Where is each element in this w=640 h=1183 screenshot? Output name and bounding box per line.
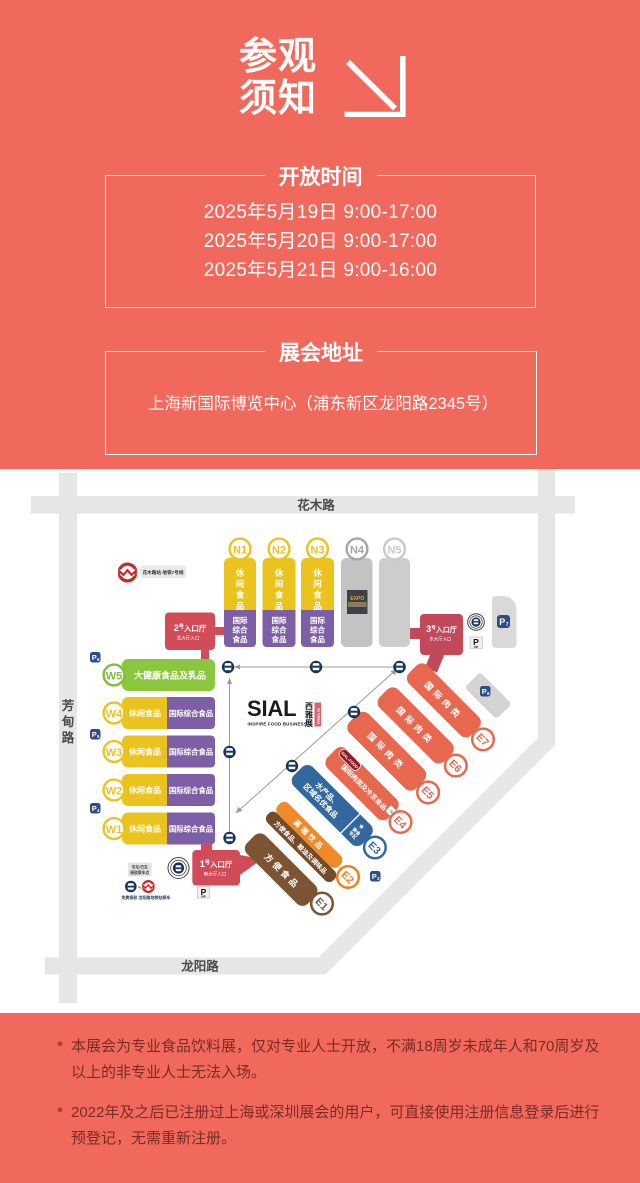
svg-text:甸: 甸 (61, 714, 75, 729)
svg-text:食: 食 (275, 590, 284, 600)
svg-text:大健康食品及乳品: 大健康食品及乳品 (134, 670, 206, 681)
svg-text:休闲食品: 休闲食品 (128, 785, 161, 795)
svg-text:W3: W3 (106, 747, 123, 759)
svg-text:国际综合食品: 国际综合食品 (169, 709, 213, 718)
svg-text:综合: 综合 (272, 625, 287, 635)
svg-text:EXPO: EXPO (350, 596, 364, 602)
svg-text:免费接驳 龙阳路地铁站乘车: 免费接驳 龙阳路地铁站乘车 (121, 894, 170, 900)
svg-text:东大厅入口: 东大厅入口 (430, 636, 452, 643)
svg-text:花木路站·地铁7号线: 花木路站·地铁7号线 (143, 569, 184, 576)
svg-text:SIAL: SIAL (247, 696, 296, 721)
svg-text:接驳乘车点: 接驳乘车点 (129, 870, 149, 875)
svg-text:食品: 食品 (310, 634, 325, 644)
svg-text:N5: N5 (387, 545, 401, 557)
svg-text:品: 品 (236, 601, 245, 611)
svg-text:闲: 闲 (313, 579, 322, 589)
svg-text:in China: in China (317, 708, 322, 725)
svg-text:品: 品 (275, 601, 284, 611)
svg-text:W4: W4 (106, 709, 123, 721)
svg-text:国际综合食品: 国际综合食品 (169, 786, 213, 795)
svg-text:休: 休 (312, 568, 322, 578)
svg-text:雅: 雅 (305, 710, 313, 720)
svg-text:N2: N2 (272, 545, 286, 557)
svg-text:休闲食品: 休闲食品 (128, 824, 161, 834)
svg-text:龙阳路: 龙阳路 (180, 959, 219, 974)
svg-text:VIP: VIP (201, 895, 206, 899)
svg-text:北大厅入口: 北大厅入口 (177, 635, 200, 642)
svg-text:P: P (499, 617, 505, 627)
svg-text:1号入口厅: 1号入口厅 (200, 859, 233, 870)
svg-text:N1: N1 (233, 545, 247, 557)
svg-text:国际综合食品: 国际综合食品 (169, 825, 213, 834)
svg-text:食品: 食品 (233, 634, 248, 644)
svg-text:食品: 食品 (272, 634, 287, 644)
svg-text:休闲食品: 休闲食品 (128, 747, 161, 757)
svg-text:W2: W2 (106, 786, 123, 798)
svg-text:休闲食品: 休闲食品 (128, 708, 161, 718)
svg-text:国际: 国际 (310, 615, 325, 625)
svg-text:专车/巴车: 专车/巴车 (132, 865, 148, 870)
svg-text:芳: 芳 (62, 698, 75, 713)
svg-text:综合: 综合 (310, 625, 325, 635)
svg-text:N4: N4 (350, 545, 365, 557)
svg-text:闲: 闲 (236, 579, 245, 589)
svg-text:国际综合食品: 国际综合食品 (169, 748, 213, 757)
svg-text:与: 与 (138, 884, 142, 889)
svg-text:VIP: VIP (474, 645, 479, 649)
svg-text:休: 休 (274, 568, 284, 578)
svg-text:食: 食 (236, 590, 245, 600)
svg-text:闲: 闲 (275, 579, 284, 589)
svg-text:2号入口厅: 2号入口厅 (174, 623, 207, 634)
svg-text:休: 休 (235, 568, 245, 578)
svg-text:路: 路 (62, 730, 75, 745)
svg-text:花木路: 花木路 (297, 498, 335, 513)
svg-text:INSPIRE FOOD BUSINESS: INSPIRE FOOD BUSINESS (248, 722, 307, 727)
svg-text:南大厅入口: 南大厅入口 (204, 871, 227, 878)
svg-text:国际: 国际 (233, 615, 248, 625)
svg-text:W5: W5 (106, 671, 123, 683)
svg-text:展: 展 (304, 719, 313, 728)
svg-text:品: 品 (313, 601, 322, 611)
svg-text:综合: 综合 (233, 625, 248, 635)
svg-text:7: 7 (506, 622, 509, 628)
svg-text:W1: W1 (106, 824, 123, 836)
svg-text:食: 食 (313, 590, 322, 600)
svg-text:N3: N3 (310, 545, 324, 557)
svg-text:国际: 国际 (272, 615, 287, 625)
